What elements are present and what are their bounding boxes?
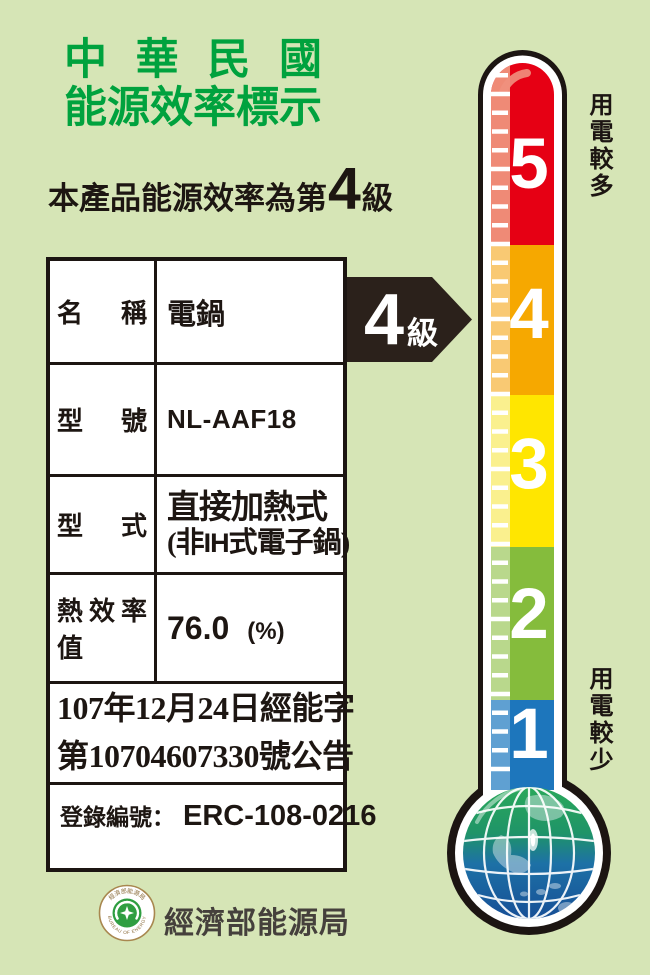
label-title: 中華民國 能源效率標示: [64, 36, 322, 132]
row-label: 型號: [57, 401, 147, 438]
heating-type-line2: (非IH式電子鍋): [167, 527, 343, 560]
row-value-cell: NL-AAF18: [157, 365, 343, 474]
bureau-of-energy-seal: 經濟部能源局 BUREAU OF ENERGY: [98, 884, 156, 942]
agency-name: 經濟部能源局: [164, 898, 350, 942]
row-label: 名稱: [57, 293, 147, 330]
type-ih: IH: [204, 528, 229, 558]
level-2-number: 2: [509, 575, 549, 654]
registration-number: ERC-108-0216: [183, 800, 376, 833]
table-row-efficiency: 熱效率值 76.0 (%): [50, 575, 343, 681]
title-line-1: 中華民國: [64, 36, 322, 84]
efficiency-value-wrap: 76.0 (%): [167, 610, 343, 647]
product-name: 電鍋: [167, 291, 343, 333]
table-row-model: 型號 NL-AAF18: [50, 365, 343, 474]
row-label-cell: 熱效率值: [50, 575, 154, 681]
heating-type-line1: 直接加熱式: [167, 490, 343, 527]
level-4-number: 4: [509, 275, 549, 354]
level-1-number: 1: [509, 695, 549, 774]
annotation-less-power: 用電較少: [581, 666, 616, 774]
arrow-grade-number: 4: [364, 284, 404, 356]
row-label-cell: 名稱: [50, 261, 154, 362]
announcement-row: 107年12月24日經能字 第10704607330號公告: [50, 681, 343, 782]
row-value-cell: 直接加熱式 (非IH式電子鍋): [157, 477, 343, 572]
type-paren-open: (非: [167, 527, 204, 559]
level-5-number: 5: [509, 125, 549, 204]
spec-table: 名稱 電鍋 型號 NL-AAF18 型式 直接加熱式 (非IH式電子鍋) 熱效率…: [46, 257, 347, 872]
grade-statement-number: 4: [328, 160, 361, 219]
energy-efficiency-label: 中華民國 能源效率標示 本產品能源效率為第 4 級 名稱 電鍋 型號 NL-AA…: [0, 0, 650, 975]
table-row-type: 型式 直接加熱式 (非IH式電子鍋): [50, 477, 343, 572]
announcement-line2: 第10704607330號公告: [57, 732, 343, 780]
row-label: 型式: [57, 506, 147, 543]
product-grade-statement: 本產品能源效率為第 4 級: [48, 160, 393, 219]
model-number: NL-AAF18: [167, 404, 343, 435]
registration-row: 登錄編號： ERC-108-0216: [50, 785, 343, 868]
row-value-cell: 76.0 (%): [157, 575, 343, 681]
annotation-more-power: 用電較多: [581, 92, 616, 200]
type-paren-rest: 式電子鍋): [229, 527, 350, 559]
announcement-line1: 107年12月24日經能字: [57, 684, 343, 732]
globe-center-glint-core: [531, 834, 536, 847]
efficiency-unit: (%): [247, 618, 284, 646]
registration-label: 登錄編號：: [60, 798, 175, 832]
globe: [463, 787, 595, 919]
table-row-name: 名稱 電鍋: [50, 261, 343, 362]
grade-statement-suffix: 級: [362, 173, 393, 218]
row-label: 熱效率值: [57, 591, 147, 665]
row-value-cell: 電鍋: [157, 261, 343, 362]
grade-statement-prefix: 本產品能源效率為第: [48, 173, 327, 218]
efficiency-value: 76.0: [167, 610, 229, 647]
row-label-cell: 型式: [50, 477, 154, 572]
level-3-number: 3: [509, 425, 549, 504]
row-label-cell: 型號: [50, 365, 154, 474]
title-line-2: 能源效率標示: [64, 84, 322, 132]
